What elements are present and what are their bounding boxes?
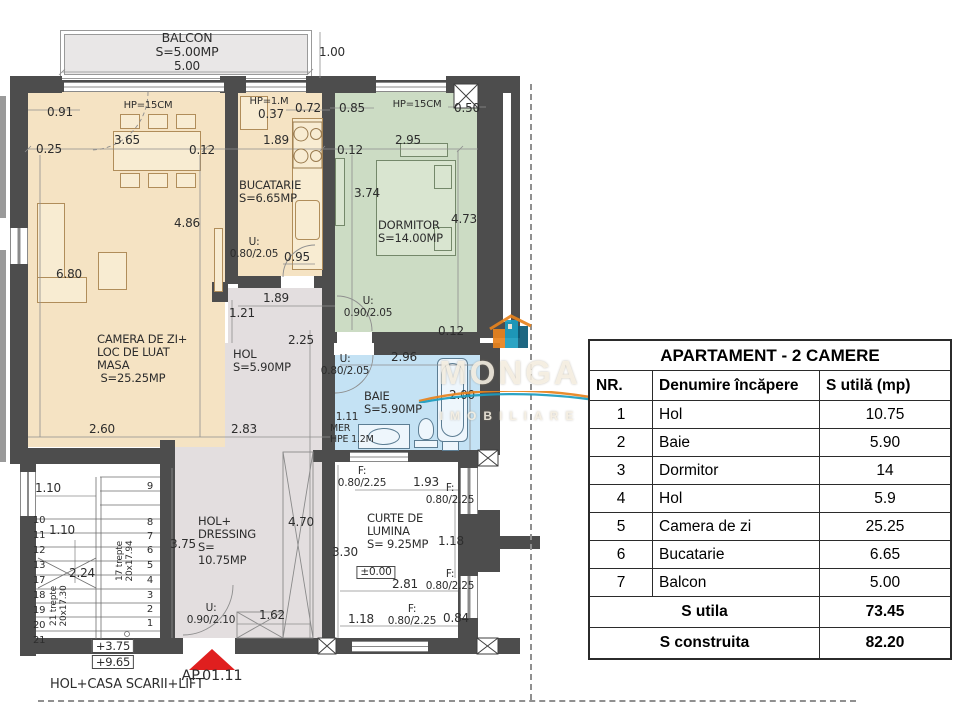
label-stairs-flight: 17 trepte 20x17.94 — [115, 541, 136, 582]
table-total-row: S utila73.45 — [589, 597, 951, 628]
room-area: 14 — [820, 457, 952, 485]
total-value: 82.20 — [820, 628, 952, 660]
floor-plan-page: BALCON S=5.00MP5.001.000.91HP=15CMHP=1.M… — [0, 0, 975, 720]
room-area: 5.00 — [820, 569, 952, 597]
boundary-dashed-line — [530, 84, 532, 700]
dim-label: 6 — [147, 545, 153, 556]
col-header-area: S utilă (mp) — [820, 371, 952, 401]
table-row: 6Bucatarie6.65 — [589, 541, 951, 569]
label-parapet: HP=15CM — [393, 99, 442, 110]
col-header-room: Denumire încăpere — [653, 371, 820, 401]
row-number: 3 — [589, 457, 653, 485]
dim-label: 1.62 — [259, 609, 285, 623]
dim-label: 3.75 — [170, 538, 196, 552]
dim-label: 1.89 — [263, 134, 289, 148]
room-name: Camera de zi — [653, 513, 820, 541]
room-name: Hol — [653, 485, 820, 513]
dim-label: 1.18 — [348, 613, 374, 627]
row-number: 6 — [589, 541, 653, 569]
dim-label: 11 — [33, 530, 45, 541]
label-dormitor: DORMITOR S=14.00MP — [378, 219, 443, 245]
dim-label: 4.86 — [174, 217, 200, 231]
room-area: 5.90 — [820, 429, 952, 457]
entrance-arrow — [189, 649, 235, 670]
dim-label: 18 — [33, 590, 45, 601]
dim-label: 3.74 — [354, 187, 380, 201]
dim-label: 10 — [33, 515, 45, 526]
dim-label: 5.00 — [174, 60, 200, 74]
dim-label: 2.81 — [392, 578, 418, 592]
dim-label: 0.12 — [189, 144, 215, 158]
room-name: Dormitor — [653, 457, 820, 485]
room-name: Hol — [653, 401, 820, 429]
label-window: F: 0.80/2.25 — [338, 466, 387, 490]
dim-label: 0.84 — [443, 612, 469, 626]
dim-label: 2.00 — [449, 389, 475, 403]
dim-label: 19 — [33, 605, 45, 616]
label-camera-de-zi: CAMERA DE ZI+ LOC DE LUAT MASA S=25.25MP — [97, 333, 187, 385]
dim-label: 8 — [147, 517, 153, 528]
dim-label: 1.10 — [35, 482, 61, 496]
table-row: 1Hol10.75 — [589, 401, 951, 429]
dim-label: 2.95 — [395, 134, 421, 148]
label-parapet: HP=1.M — [250, 96, 289, 107]
row-number: 7 — [589, 569, 653, 597]
dim-label: 1.21 — [229, 307, 255, 321]
dim-label: 9 — [147, 481, 153, 492]
dim-label: 4.73 — [451, 213, 477, 227]
total-label: S construita — [589, 628, 820, 660]
dim-label: 2.60 — [89, 423, 115, 437]
table-row: 3Dormitor14 — [589, 457, 951, 485]
dim-label: 0.95 — [284, 251, 310, 265]
dim-label: 2.25 — [288, 334, 314, 348]
dim-label: 20 — [33, 620, 45, 631]
dim-label: 1.18 — [438, 535, 464, 549]
label-door: U: 0.80/2.05 — [321, 354, 370, 378]
dim-label: 1 — [147, 618, 153, 629]
label-door: U: 0.80/2.05 — [230, 237, 279, 261]
label-stairs-flight: 21 trepte 20x17.30 — [49, 586, 70, 627]
label-level: +9.65 — [92, 655, 134, 669]
boundary-dashed-line — [38, 700, 856, 702]
dim-label: 17 — [33, 575, 45, 586]
row-number: 5 — [589, 513, 653, 541]
room-area: 5.9 — [820, 485, 952, 513]
dim-label: 0.85 — [339, 102, 365, 116]
dim-label: 7 — [147, 531, 153, 542]
room-area: 10.75 — [820, 401, 952, 429]
dim-label: 12 — [33, 545, 45, 556]
dim-label: 21 — [33, 635, 45, 646]
dim-label: 1.89 — [263, 292, 289, 306]
dim-label: 2.83 — [231, 423, 257, 437]
table-total-row: S construita82.20 — [589, 628, 951, 660]
dim-label: 0.25 — [36, 143, 62, 157]
label-baie: BAIE S=5.90MP — [364, 390, 422, 416]
table-title: APARTAMENT - 2 CAMERE — [589, 340, 951, 371]
dim-label: 0.37 — [258, 108, 284, 122]
room-name: Bucatarie — [653, 541, 820, 569]
label-curte-de-lumina: CURTE DE LUMINA S= 9.25MP — [367, 512, 428, 551]
dim-label: 0.12 — [337, 144, 363, 158]
row-number: 4 — [589, 485, 653, 513]
label-hol-dressing: HOL+ DRESSING S= 10.75MP — [198, 515, 256, 567]
room-area: 6.65 — [820, 541, 952, 569]
table-row: 5Camera de zi25.25 — [589, 513, 951, 541]
dim-label: 4.70 — [288, 516, 314, 530]
row-number: 1 — [589, 401, 653, 429]
dim-label: 0.72 — [295, 102, 321, 116]
dim-label: 0.50 — [454, 102, 480, 116]
label-door: U: 0.90/2.05 — [344, 296, 393, 320]
label-window: F: 0.80/2.25 — [426, 483, 475, 507]
dim-label: 2.96 — [391, 351, 417, 365]
label-door: U: 0.90/2.10 — [187, 603, 236, 627]
footer-note: HOL+CASA SCARII+LIFT — [50, 678, 204, 693]
row-number: 2 — [589, 429, 653, 457]
table-row: 2Baie5.90 — [589, 429, 951, 457]
dim-label: 0.91 — [47, 106, 73, 120]
dim-label: 13 — [33, 560, 45, 571]
dim-label: 0.12 — [438, 325, 464, 339]
dim-label: 2.24 — [69, 567, 95, 581]
table-row: 7Balcon5.00 — [589, 569, 951, 597]
room-name: Balcon — [653, 569, 820, 597]
apartment-area-table: APARTAMENT - 2 CAMERE NR. Denumire încăp… — [588, 339, 952, 660]
dim-label: 5 — [147, 560, 153, 571]
label-level: ±0.00 — [356, 566, 395, 579]
dim-label: 1.10 — [49, 524, 75, 538]
col-header-nr: NR. — [589, 371, 653, 401]
dim-label: 4 — [147, 575, 153, 586]
total-label: S utila — [589, 597, 820, 628]
label-window: F: 0.80/2.25 — [388, 604, 437, 628]
dim-label: 3.30 — [332, 546, 358, 560]
dim-label: 3.65 — [114, 134, 140, 148]
dim-label: 3 — [147, 590, 153, 601]
room-name: Baie — [653, 429, 820, 457]
label-bucatarie: BUCATARIE S=6.65MP — [239, 179, 301, 205]
room-area: 25.25 — [820, 513, 952, 541]
dim-label: 1.00 — [319, 46, 345, 60]
label-window: F: 0.80/2.25 — [426, 569, 475, 593]
label-hol: HOL S=5.90MP — [233, 348, 291, 374]
dim-label: MER HPE 1.2M — [330, 424, 374, 446]
floor-plan: BALCON S=5.00MP5.001.000.91HP=15CMHP=1.M… — [0, 0, 560, 720]
table-row: 4Hol5.9 — [589, 485, 951, 513]
label-balcon: BALCON S=5.00MP — [156, 31, 219, 60]
dim-label: 2 — [147, 604, 153, 615]
dim-label: 6.80 — [56, 268, 82, 282]
total-value: 73.45 — [820, 597, 952, 628]
label-parapet: HP=15CM — [124, 100, 173, 111]
label-level: +3.75 — [92, 639, 134, 653]
